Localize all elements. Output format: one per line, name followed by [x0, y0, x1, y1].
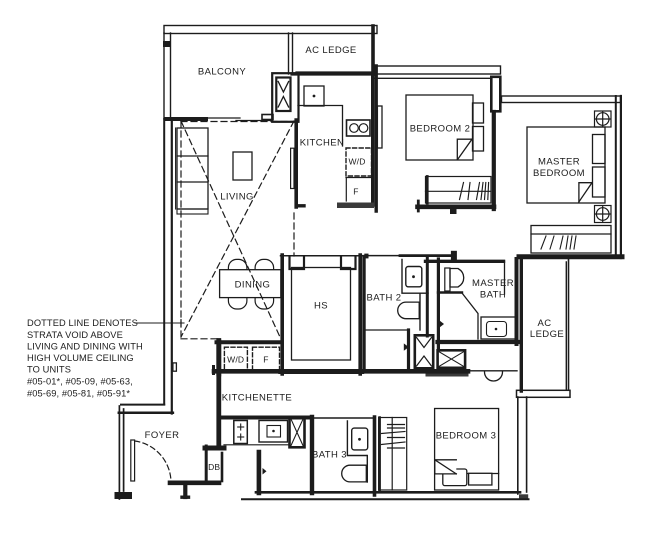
svg-text:HIGH VOLUME CEILING: HIGH VOLUME CEILING [27, 353, 134, 363]
svg-text:TO UNITS: TO UNITS [27, 365, 71, 375]
svg-text:BEDROOM: BEDROOM [533, 168, 585, 179]
svg-text:DOTTED LINE DENOTES: DOTTED LINE DENOTES [27, 318, 138, 328]
svg-text:KITCHEN: KITCHEN [300, 138, 345, 149]
svg-text:MASTER: MASTER [538, 157, 580, 168]
svg-text:STRATA VOID ABOVE: STRATA VOID ABOVE [27, 330, 123, 340]
svg-text:DB: DB [208, 462, 220, 472]
svg-text:BATH 2: BATH 2 [367, 293, 402, 304]
svg-text:BEDROOM 2: BEDROOM 2 [410, 124, 471, 135]
svg-text:FOYER: FOYER [145, 430, 180, 441]
svg-text:BEDROOM 3: BEDROOM 3 [436, 431, 497, 442]
svg-text:BATH 3: BATH 3 [312, 450, 347, 461]
svg-text:LIVING AND DINING WITH: LIVING AND DINING WITH [27, 342, 143, 352]
svg-text:LIVING: LIVING [220, 192, 254, 203]
svg-text:F: F [353, 187, 358, 197]
svg-text:BATH: BATH [480, 290, 506, 301]
svg-text:AC: AC [538, 318, 552, 329]
svg-text:KITCHENETTE: KITCHENETTE [222, 393, 292, 404]
svg-text:W/D: W/D [227, 355, 244, 365]
svg-text:W/D: W/D [348, 157, 365, 167]
svg-text:BALCONY: BALCONY [198, 67, 246, 78]
svg-text:F: F [263, 355, 268, 365]
svg-text:DINING: DINING [235, 280, 271, 291]
svg-text:#05-69, #05-81, #05-91*: #05-69, #05-81, #05-91* [27, 389, 130, 399]
svg-text:LEDGE: LEDGE [530, 329, 564, 340]
svg-text:HS: HS [314, 301, 328, 312]
svg-text:MASTER: MASTER [472, 278, 514, 289]
svg-text:AC LEDGE: AC LEDGE [305, 45, 356, 56]
svg-text:#05-01*, #05-09, #05-63,: #05-01*, #05-09, #05-63, [27, 377, 133, 387]
